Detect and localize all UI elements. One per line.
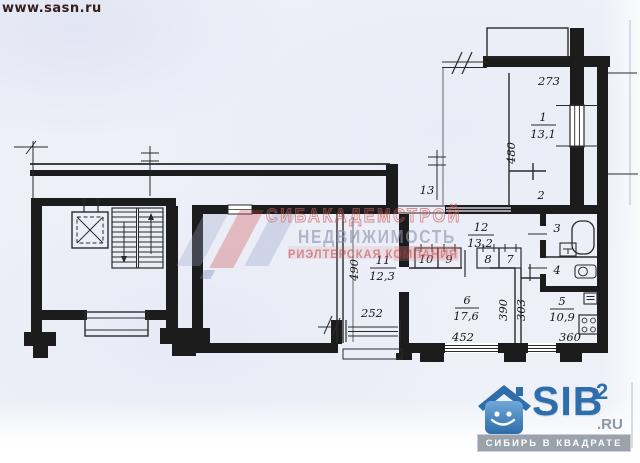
dim-360: 360 — [559, 330, 581, 344]
watermark-url: www.sasn.ru — [2, 1, 102, 16]
scanned-floorplan-page: www.sasn.ru — [0, 0, 640, 463]
room-3-number: 3 — [553, 221, 560, 235]
room-11-area: 12,3 — [369, 269, 395, 283]
house-icon — [476, 384, 532, 438]
room-4-number: 4 — [552, 263, 560, 277]
room-5-area: 10,9 — [549, 310, 575, 324]
dim-480: 480 — [504, 142, 518, 165]
bathtub-icon — [572, 221, 594, 254]
brand-tagline: СИБИРЬ В КВАДРАТЕ — [477, 434, 631, 452]
room-12-area: 13,2 — [467, 236, 493, 250]
toilet-icon — [575, 265, 596, 278]
dim-273: 273 — [537, 74, 560, 88]
brand-superscript: 2 — [596, 379, 608, 405]
kitchen-sink-icon — [584, 293, 597, 304]
room-5-number: 5 — [558, 294, 565, 308]
brand-tld: .RU — [597, 416, 623, 433]
stove-icon — [579, 315, 598, 334]
sib-logo: SIB 2 .RU СИБИРЬ В КВАДРАТЕ — [474, 380, 636, 456]
room-13-number: 13 — [420, 183, 435, 197]
room-7-number: 7 — [506, 252, 514, 266]
room-6-area: 17,6 — [453, 309, 479, 323]
stairs-icon — [112, 208, 163, 268]
dim-252: 252 — [360, 306, 383, 320]
dim-452: 452 — [451, 330, 474, 344]
room-2-number: 2 — [536, 188, 544, 202]
room-12-number: 12 — [474, 220, 489, 234]
dim-490: 490 — [347, 259, 361, 282]
dim-303: 303 — [514, 299, 528, 321]
elevator-icon — [72, 212, 108, 248]
watermark-line1: СИБАКАДЕМСТРОЙ — [266, 205, 462, 227]
dim-390: 390 — [496, 299, 510, 321]
room-1-area: 13,1 — [530, 127, 556, 141]
brand-name: SIB — [532, 378, 603, 425]
watermark-line3: РИЭЛТЕРСКАЯ КОМПАНИЯ — [288, 249, 458, 261]
room-6-number: 6 — [463, 293, 470, 307]
room-1-number: 1 — [539, 110, 546, 124]
watermark-line2: НЕДВИЖИМОСТЬ — [298, 227, 456, 247]
room-8-number: 8 — [484, 252, 491, 266]
